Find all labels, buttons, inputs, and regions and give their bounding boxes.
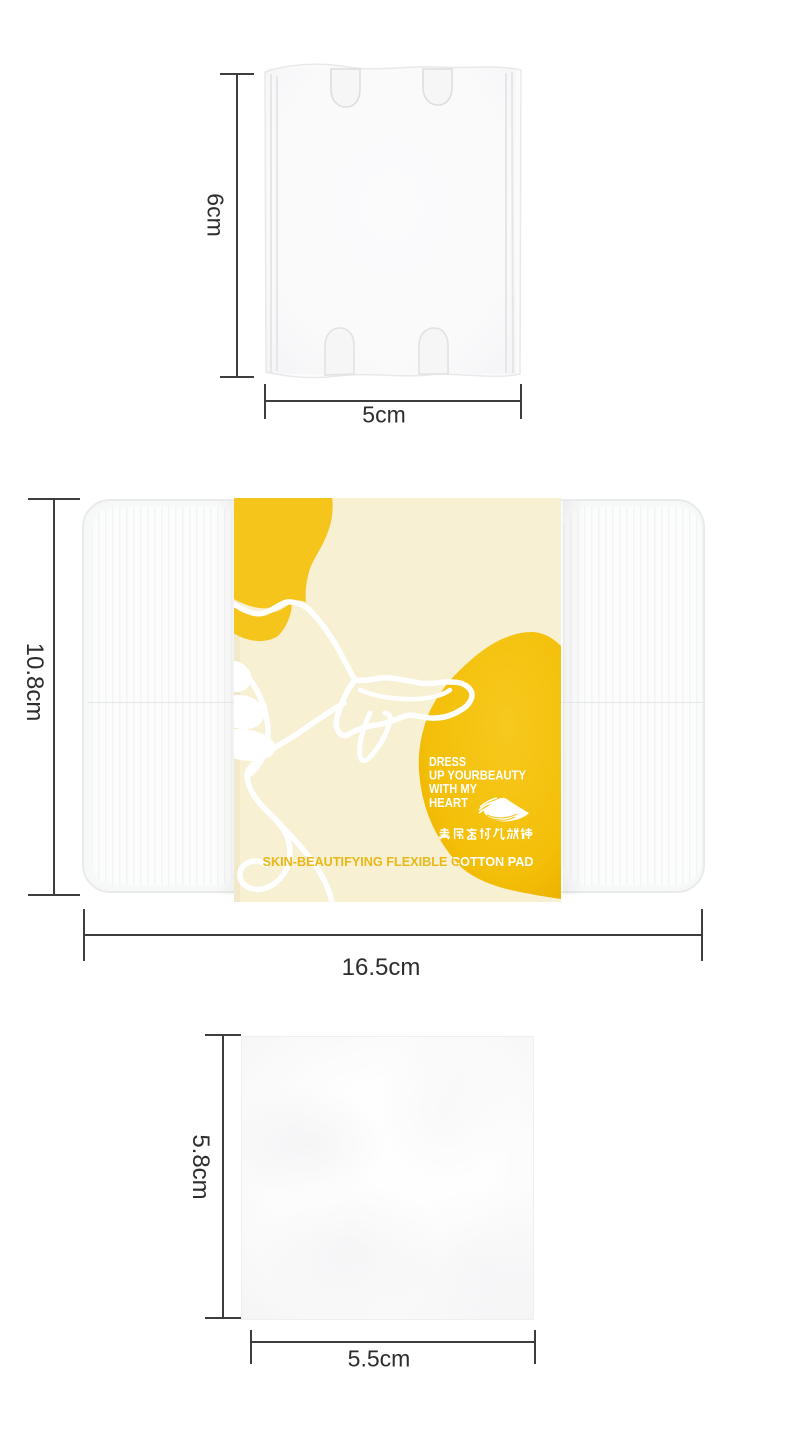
svg-text:HEART: HEART (429, 796, 468, 810)
svg-text:DRESS: DRESS (429, 755, 466, 769)
svg-text:UP YOURBEAUTY: UP YOURBEAUTY (429, 769, 527, 783)
svg-text:WITH MY: WITH MY (429, 782, 478, 796)
